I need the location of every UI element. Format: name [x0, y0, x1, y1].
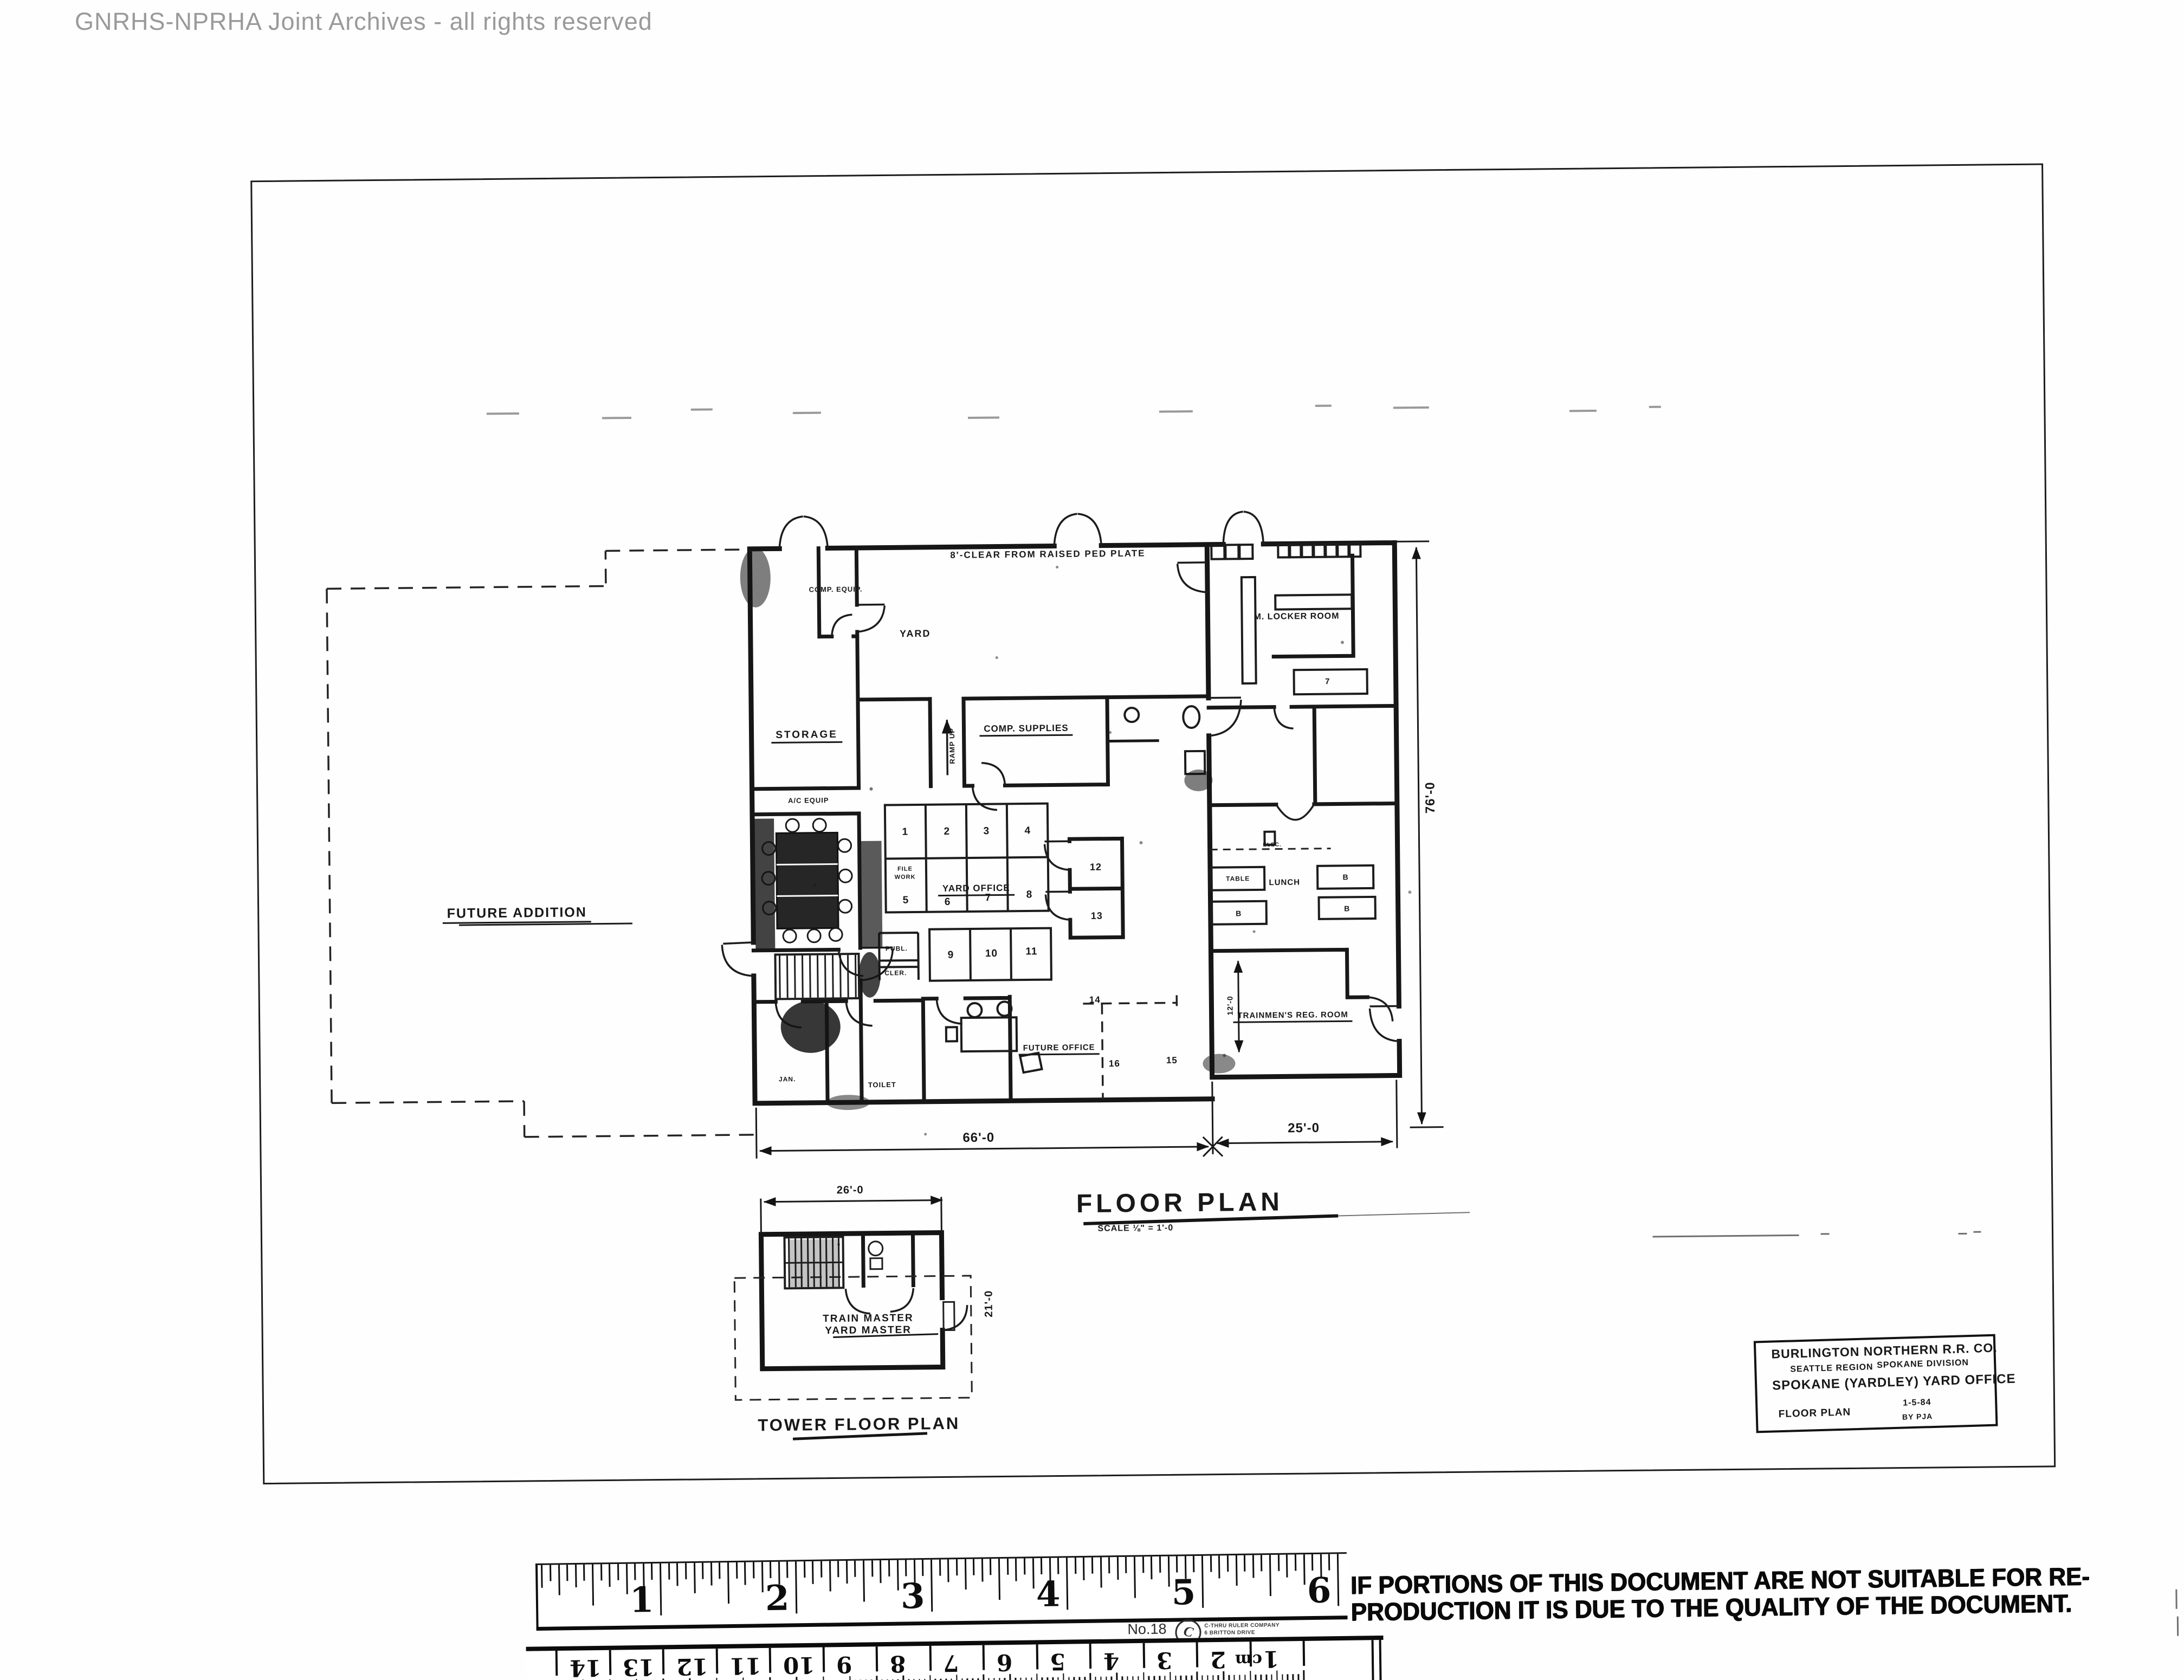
- mm-tick: [1298, 1674, 1300, 1680]
- room-label-yard: YARD: [900, 629, 931, 639]
- cm-number: 3: [1156, 1647, 1173, 1673]
- inch-tick: [939, 1560, 941, 1576]
- cm-number: 14: [569, 1655, 601, 1680]
- room-number-12: 12: [1090, 862, 1102, 872]
- inch-tick: [558, 1565, 560, 1595]
- brand-line-1: C-THRU RULER COMPANY: [1204, 1622, 1283, 1630]
- dim-wing-width: 25'-0: [1288, 1122, 1320, 1135]
- floor-plan-scale: SCALE ⅛" = 1'-0: [1097, 1224, 1173, 1233]
- mm-tick: [1159, 1676, 1160, 1680]
- mm-tick: [1250, 1671, 1251, 1680]
- desk-number: 2: [944, 826, 950, 837]
- desk-number: 9: [948, 950, 954, 960]
- inch-tick: [1193, 1556, 1194, 1572]
- cm-number: 6: [996, 1649, 1012, 1676]
- desk-number: 5: [903, 895, 909, 906]
- room-number-14: 14: [1089, 995, 1101, 1004]
- mm-tick: [1287, 1674, 1289, 1680]
- inch-tick: [829, 1561, 831, 1591]
- title-block-sheet: FLOOR PLAN: [1778, 1406, 1851, 1420]
- dim-main-width: 66'-0: [962, 1132, 994, 1145]
- mm-tick: [1180, 1676, 1182, 1680]
- cm-divider: [983, 1645, 985, 1670]
- mm-tick: [1191, 1676, 1193, 1680]
- inch-tick: [990, 1559, 991, 1575]
- inch-tick: [660, 1563, 662, 1616]
- inch-tick: [702, 1563, 703, 1579]
- inch-tick: [896, 1560, 899, 1591]
- tower-room-label-2: YARD MASTER: [825, 1325, 912, 1336]
- room-number-13: 13: [1091, 911, 1103, 921]
- conference-table: [761, 818, 852, 943]
- washroom-divider: [1108, 741, 1159, 741]
- inch-tick: [1261, 1555, 1262, 1571]
- inch-tick: [956, 1559, 958, 1575]
- inch-tick: [693, 1563, 695, 1593]
- mm-tick: [1111, 1677, 1113, 1680]
- mm-tick: [1025, 1678, 1027, 1680]
- sheet-border: [251, 164, 2055, 1484]
- inch-tick: [1311, 1554, 1313, 1571]
- inch-tick: [964, 1559, 966, 1589]
- inch-tick: [981, 1559, 984, 1582]
- inch-tick: [998, 1559, 1000, 1600]
- title-block-region: SEATTLE REGION: [1790, 1362, 1873, 1374]
- cm-number: 10: [783, 1652, 815, 1679]
- mm-tick: [1212, 1675, 1214, 1680]
- mm-tick: [956, 1675, 958, 1680]
- inch-tick: [1108, 1557, 1110, 1573]
- inch-tick: [626, 1564, 628, 1594]
- mm-tick: [1223, 1671, 1225, 1680]
- mm-tick: [1148, 1676, 1150, 1680]
- inch-tick: [1218, 1555, 1220, 1578]
- inch-tick: [880, 1560, 882, 1583]
- room-number-16: 16: [1109, 1059, 1120, 1068]
- label-elec: ELEC.: [1263, 843, 1282, 848]
- mm-tick: [988, 1678, 990, 1680]
- mm-tick: [1047, 1677, 1049, 1680]
- inch-tick: [837, 1561, 839, 1577]
- inch-tick: [617, 1564, 619, 1580]
- ink-smudges: [740, 541, 1415, 1288]
- label-table: TABLE: [1226, 875, 1250, 882]
- title-block-division: SPOKANE DIVISION: [1877, 1358, 1969, 1371]
- mm-tick: [1020, 1678, 1022, 1680]
- mm-tick: [1042, 1677, 1043, 1680]
- label-bench-2: B: [1343, 873, 1349, 881]
- mm-tick: [849, 1676, 851, 1680]
- room-label-comp-equip: COMP. EQUIP.: [809, 585, 862, 593]
- inch-tick: [727, 1562, 729, 1604]
- inch-tick: [634, 1563, 636, 1580]
- inch-tick: [1032, 1558, 1034, 1588]
- inch-tick: [1142, 1556, 1144, 1573]
- inch-tick: [922, 1560, 923, 1576]
- mm-tick: [742, 1677, 744, 1680]
- room-number-15: 15: [1166, 1056, 1178, 1065]
- mm-tick: [1233, 1675, 1235, 1680]
- mm-tick: [1261, 1675, 1262, 1680]
- label-bench-3: B: [1344, 904, 1350, 912]
- inch-tick: [719, 1562, 720, 1579]
- cm-divider: [1196, 1642, 1199, 1667]
- room-label-future-addition: FUTURE ADDITION: [442, 906, 591, 924]
- mm-tick: [1116, 1672, 1118, 1680]
- desk-number: 6: [945, 897, 951, 907]
- mm-tick: [1052, 1677, 1054, 1680]
- inch-tick: [863, 1561, 865, 1602]
- cm-number: 1: [1263, 1646, 1280, 1672]
- inch-tick: [1041, 1558, 1042, 1574]
- inch-tick: [1252, 1555, 1255, 1578]
- inch-tick: [820, 1561, 822, 1578]
- tower-title-underline: [793, 1433, 927, 1439]
- cm-number: 13: [623, 1654, 655, 1680]
- inch-tick: [1278, 1555, 1280, 1571]
- inch-tick: [736, 1562, 738, 1579]
- label-publ: PUBL.: [886, 945, 908, 952]
- inch-tick: [1269, 1555, 1271, 1596]
- mm-tick: [716, 1678, 718, 1680]
- inch-tick: [676, 1563, 679, 1586]
- cm-divider: [609, 1650, 611, 1675]
- mm-tick: [823, 1677, 824, 1680]
- cm-end-line: [1379, 1640, 1382, 1680]
- cm-number: 4: [1103, 1647, 1119, 1674]
- inch-tick: [1057, 1558, 1059, 1574]
- mm-tick: [1010, 1674, 1011, 1680]
- mm-tick: [1095, 1677, 1096, 1680]
- dim-tower-width: 26'-0: [837, 1185, 864, 1196]
- mm-tick: [999, 1678, 1000, 1680]
- title-block: BURLINGTON NORTHERN R.R. CO. SEATTLE REG…: [1754, 1334, 1998, 1433]
- inch-tick: [1100, 1557, 1102, 1587]
- label-room-7: 7: [1325, 677, 1330, 686]
- desk-number: 11: [1025, 946, 1037, 957]
- inch-tick: [744, 1562, 746, 1585]
- inch-tick: [1134, 1557, 1136, 1598]
- inch-tick: [1295, 1554, 1296, 1571]
- inch-tick: [1024, 1558, 1025, 1574]
- mm-tick: [1084, 1677, 1086, 1680]
- inch-tick: [905, 1560, 907, 1576]
- floor-plan-title: FLOOR PLAN: [1076, 1190, 1283, 1218]
- mm-tick: [1303, 1670, 1304, 1680]
- cm-divider: [555, 1651, 558, 1676]
- mm-tick: [1271, 1675, 1272, 1680]
- title-block-date: 1-5-84: [1903, 1398, 1931, 1408]
- mm-tick: [1132, 1676, 1134, 1680]
- mm-tick: [1036, 1673, 1038, 1680]
- mm-tick: [1138, 1676, 1139, 1680]
- mm-tick: [929, 1675, 931, 1680]
- room-label-jan: JAN.: [779, 1076, 796, 1082]
- inch-tick: [668, 1563, 670, 1580]
- room-label-comp-supplies: COMP. SUPPLIES: [979, 723, 1073, 737]
- dim-reg-room: 12'-0: [1226, 996, 1233, 1015]
- mm-tick: [1244, 1675, 1246, 1680]
- inch-tick: [786, 1562, 788, 1578]
- mm-tick: [876, 1676, 877, 1680]
- mm-tick: [1154, 1676, 1155, 1680]
- cm-divider: [662, 1649, 665, 1674]
- cm-divider: [1036, 1644, 1038, 1669]
- mm-tick: [1015, 1678, 1017, 1680]
- mm-tick: [1169, 1672, 1171, 1680]
- mm-tick: [1196, 1671, 1198, 1680]
- inch-tick: [1083, 1558, 1085, 1580]
- inch-tick: [795, 1561, 797, 1613]
- inch-tick: [1159, 1556, 1161, 1573]
- future-addition-outline: [326, 550, 756, 1139]
- inch-tick: [761, 1562, 763, 1592]
- inch-tick: [1066, 1558, 1068, 1610]
- inch-tick: [651, 1563, 652, 1580]
- inch-tick: [609, 1564, 611, 1587]
- inch-tick: [931, 1560, 933, 1612]
- inch-number: 1: [629, 1580, 654, 1621]
- inch-tick: [1235, 1555, 1237, 1586]
- inch-tick: [888, 1560, 890, 1576]
- desk-number: 7: [985, 893, 992, 903]
- cm-number: 11: [729, 1652, 761, 1679]
- inch-tick: [592, 1565, 594, 1606]
- mm-tick: [1207, 1675, 1209, 1680]
- mm-tick: [1068, 1677, 1070, 1680]
- mm-tick: [1201, 1675, 1203, 1680]
- inch-tick: [770, 1562, 771, 1578]
- label-cler: CLER.: [884, 970, 907, 976]
- cm-number: 5: [1050, 1649, 1066, 1675]
- inch-number: 3: [900, 1576, 925, 1617]
- cm-divider: [769, 1648, 772, 1673]
- inch-tick: [753, 1562, 754, 1578]
- cm-number: 9: [836, 1651, 852, 1678]
- mm-tick: [769, 1677, 771, 1680]
- dim-overall-depth: 76'-0: [1424, 781, 1437, 813]
- ramp-up-label: RAMP UP: [948, 728, 956, 764]
- cm-divider: [876, 1646, 878, 1671]
- scanned-floor-plan-page: 8'-CLEAR FROM RAISED PED PLATE FUTURE AD…: [0, 0, 2184, 1680]
- inch-tick: [1244, 1555, 1245, 1572]
- inch-tick: [1328, 1554, 1330, 1571]
- room-label-ac-equip: A/C EQUIP: [788, 797, 829, 804]
- inch-tick: [1303, 1554, 1305, 1585]
- inch-tick: [1167, 1556, 1169, 1587]
- inch-tick: [1201, 1556, 1204, 1608]
- inch-tick: [550, 1565, 551, 1581]
- cm-number: 8: [889, 1651, 906, 1677]
- inch-tick: [947, 1559, 949, 1582]
- title-block-by: BY PJA: [1902, 1412, 1933, 1421]
- mm-tick: [1239, 1675, 1240, 1680]
- drawing-sheet: 8'-CLEAR FROM RAISED PED PLATE FUTURE AD…: [0, 0, 2184, 1680]
- cm-divider: [929, 1646, 932, 1671]
- cm-divider: [1303, 1641, 1306, 1666]
- mm-tick: [903, 1676, 904, 1680]
- cm-number: 2: [1210, 1646, 1226, 1673]
- cm-divider: [1142, 1643, 1145, 1668]
- inch-number: 4: [1036, 1574, 1061, 1616]
- inch-tick: [804, 1561, 805, 1578]
- inch-number: 2: [765, 1578, 790, 1619]
- mm-tick: [1164, 1676, 1166, 1680]
- inch-tick: [1015, 1559, 1017, 1581]
- mm-tick: [1063, 1673, 1064, 1680]
- label-file: FILE: [897, 867, 913, 873]
- inch-tick: [1007, 1559, 1009, 1575]
- tower-dashed-outline: [734, 1276, 972, 1400]
- mm-tick: [1186, 1676, 1187, 1680]
- room-label-lunch: LUNCH: [1269, 878, 1300, 887]
- mm-tick: [1276, 1671, 1278, 1680]
- inch-tick: [710, 1562, 713, 1585]
- inch-tick: [575, 1565, 577, 1587]
- inch-tick: [600, 1564, 602, 1580]
- note-raised-ped-plate: 8'-CLEAR FROM RAISED PED PLATE: [950, 548, 1145, 559]
- inch-tick: [871, 1560, 873, 1576]
- inch-tick: [1337, 1554, 1339, 1606]
- mm-tick: [1079, 1677, 1081, 1680]
- mm-tick: [983, 1675, 984, 1680]
- mm-tick: [1127, 1676, 1128, 1680]
- room-label-yard-office: YARD OFFICE: [938, 883, 1015, 896]
- desk-number: 1: [902, 827, 908, 837]
- tower-room-label-1: TRAIN MASTER: [823, 1313, 914, 1324]
- inch-tick: [1176, 1556, 1178, 1572]
- cm-divider: [822, 1647, 825, 1672]
- inch-tick: [1075, 1558, 1076, 1574]
- inch-tick: [1210, 1556, 1212, 1572]
- inch-tick: [812, 1561, 814, 1584]
- furniture: [875, 544, 1377, 1074]
- mm-tick: [1265, 1675, 1267, 1680]
- archive-watermark: GNRHS-NPRHA Joint Archives - all rights …: [75, 8, 652, 36]
- mm-tick: [1282, 1674, 1283, 1680]
- inch-tick: [973, 1559, 974, 1575]
- mm-tick: [1218, 1675, 1219, 1680]
- ruler-model: No.18: [1127, 1621, 1166, 1638]
- inch-tick: [1125, 1557, 1127, 1573]
- underline-extension: [1338, 1212, 1470, 1216]
- room-label-trainmens-reg: TRAINMEN'S REG. ROOM: [1233, 1011, 1353, 1023]
- inch-tick: [1286, 1555, 1288, 1578]
- label-work: WORK: [895, 874, 916, 880]
- future-addition-underline: [459, 923, 632, 925]
- mm-tick: [1074, 1677, 1075, 1680]
- inch-tick: [541, 1565, 543, 1588]
- mm-tick: [1255, 1675, 1257, 1680]
- room-label-m-locker-room: M. LOCKER ROOM: [1253, 612, 1339, 622]
- cm-number: 12: [676, 1653, 708, 1680]
- mm-tick: [1228, 1675, 1230, 1680]
- mm-tick: [796, 1677, 798, 1680]
- inch-tick: [583, 1565, 585, 1581]
- mm-tick: [993, 1678, 995, 1680]
- cm-divider: [715, 1649, 718, 1673]
- title-block-project: SPOKANE (YARDLEY) YARD OFFICE: [1772, 1372, 2016, 1394]
- cm-number: 7: [943, 1650, 959, 1676]
- desk-number: 3: [983, 826, 990, 836]
- inch-tick: [1151, 1556, 1153, 1579]
- cm-end-line: [1372, 1640, 1374, 1680]
- mm-tick: [1100, 1677, 1102, 1680]
- inch-tick: [566, 1565, 568, 1581]
- lunch-dashed-line: [1210, 849, 1331, 850]
- mm-tick: [1089, 1673, 1091, 1680]
- inch-tick: [685, 1563, 687, 1579]
- inch-number: 5: [1171, 1572, 1196, 1613]
- quality-disclaimer-stamp: IF PORTIONS OF THIS DOCUMENT ARE NOT SUI…: [1350, 1562, 2163, 1626]
- scan-noise: [487, 400, 1661, 423]
- inch-tick: [1117, 1557, 1119, 1580]
- mm-tick: [1106, 1677, 1107, 1680]
- room-label-storage: STORAGE: [771, 729, 842, 744]
- inch-tick: [846, 1561, 848, 1584]
- room-label-toilet: TOILET: [868, 1081, 896, 1088]
- mm-tick: [1004, 1678, 1006, 1680]
- inch-tick: [1227, 1555, 1229, 1572]
- cm-divider: [1089, 1644, 1092, 1669]
- cm-unit: cm: [1235, 1650, 1262, 1670]
- tower-plan-title: TOWER FLOOR PLAN: [758, 1415, 960, 1434]
- inch-ruler: 123456: [535, 1552, 1348, 1631]
- mm-tick: [1057, 1677, 1059, 1680]
- desk-number: 10: [985, 948, 998, 959]
- desk-number: 4: [1024, 825, 1031, 836]
- dim-tower-depth: 21'-0: [983, 1290, 994, 1317]
- mm-tick: [1031, 1677, 1032, 1680]
- inch-tick: [854, 1561, 856, 1577]
- mm-tick: [1175, 1676, 1177, 1680]
- mm-tick: [1143, 1672, 1145, 1680]
- desk-number: 8: [1026, 889, 1033, 900]
- inch-tick: [1091, 1558, 1093, 1574]
- inch-number: 6: [1307, 1571, 1332, 1612]
- room-label-future-office: FUTURE OFFICE: [1019, 1043, 1100, 1055]
- mm-tick: [1121, 1676, 1123, 1680]
- mm-tick: [1293, 1674, 1294, 1680]
- label-bench-1: B: [1236, 909, 1242, 917]
